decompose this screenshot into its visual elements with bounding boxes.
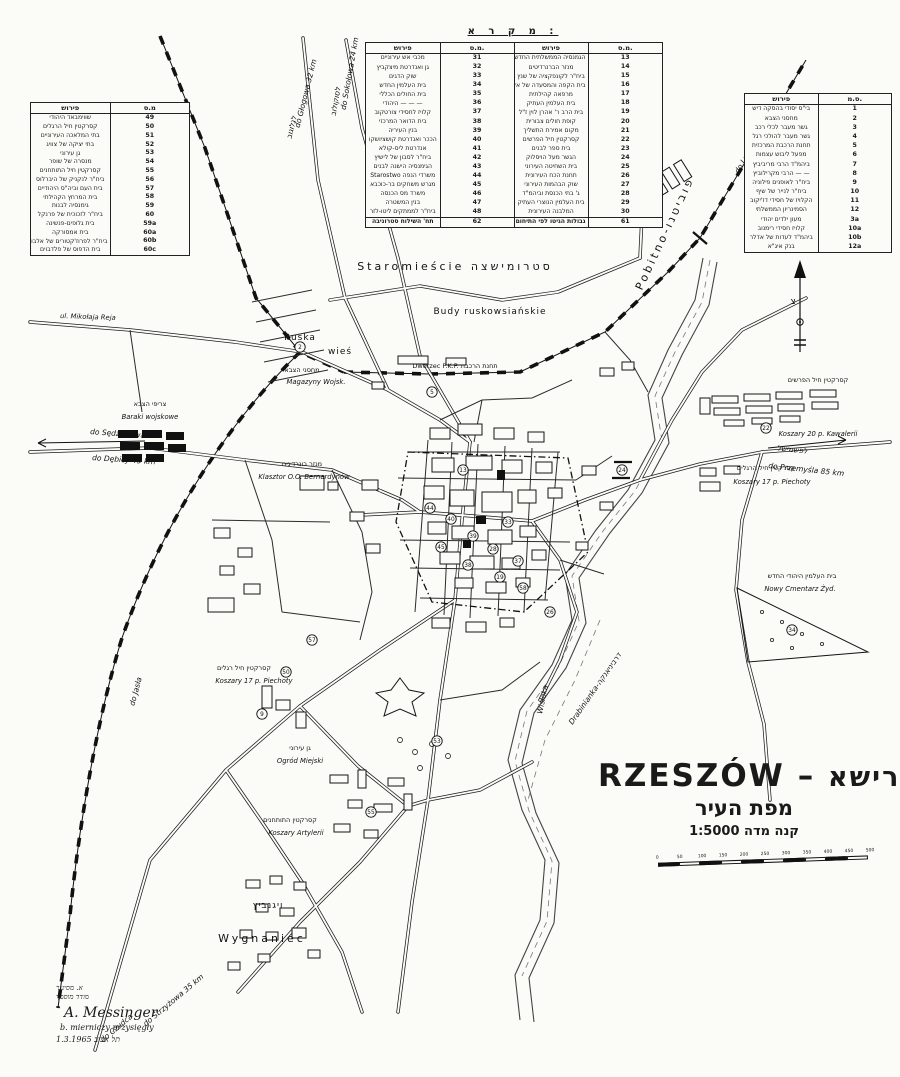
legend-cell: 35 [440, 90, 514, 99]
legend-cell: — — — היהודי [366, 99, 440, 108]
legend-cell: הגימנסיה הישנה לבנים [366, 162, 440, 171]
map-marker-39: 39 [468, 531, 478, 541]
map-marker-44: 44 [425, 503, 435, 513]
legend-cell: 10b [818, 234, 891, 243]
legend-cell: 37 [440, 108, 514, 117]
title-latin: RZESZÓW [598, 758, 785, 794]
legend-cell: 47 [440, 198, 514, 207]
legend-cell: 15 [588, 72, 662, 81]
legend-cell: 3 [818, 124, 891, 133]
legend-cell: 43 [440, 162, 514, 171]
label-artyleria-he: קסרקטין התותחנים [263, 816, 317, 824]
map-marker-50: 50 [281, 667, 291, 677]
map-marker-45: 45 [436, 542, 446, 552]
legend-cell: 54 [110, 158, 189, 167]
svg-text:24: 24 [618, 468, 626, 474]
legend-cell: בית השחיטה העירוני [514, 162, 588, 171]
legend-cell: גן עירוני [31, 149, 110, 158]
legend-cell: 4 [818, 133, 891, 142]
scale-tick: 100 [698, 854, 707, 859]
legend-cell: תחנת הרכבת המרכזית [745, 142, 818, 151]
map-marker-9: 9 [257, 709, 267, 719]
legend-cell: גשר מעבר להולכי רגל [745, 133, 818, 142]
legend-cell: גן ואנדרטת מיצקביץ [366, 63, 440, 72]
legend-cell: מקום אמירת התשליך [514, 126, 588, 135]
legend-cell: 42 [440, 153, 514, 162]
svg-text:53: 53 [433, 739, 441, 745]
scale-segment [700, 861, 721, 866]
legend-cell: 52 [110, 141, 189, 150]
label-artyleria: Koszary Artylerii [268, 829, 324, 837]
legend-cell: ביח"ר לסבון של לישיץ [366, 153, 440, 162]
legend-cell: 12a [818, 243, 891, 252]
legend-cell: קסרקטין חיל הפרשים [514, 135, 588, 144]
svg-text:26: 26 [546, 610, 554, 616]
legend-cell: 62 [440, 217, 514, 227]
label-dworzec: Dworzec P.K.P. תחנת הרכבת [412, 362, 497, 370]
svg-text:5: 5 [430, 390, 434, 396]
map-marker-33: 33 [503, 517, 513, 527]
legend-cell: 30 [588, 207, 662, 217]
scale-tick: 0 [656, 856, 659, 861]
label-baraki-he: צריפי הצבא [134, 400, 167, 408]
svg-text:33: 33 [504, 520, 512, 526]
legend-cell: 38 [440, 117, 514, 126]
label-do-jasla: do Jasła [127, 676, 143, 707]
legend-cell: 39 [440, 126, 514, 135]
signature-hebrew-2: מודד מוסמך [56, 993, 226, 1002]
label-wygnaniec-he: ויגנביץ [253, 901, 284, 911]
map-marker-57: 57 [307, 635, 317, 645]
map-marker-28: 28 [488, 544, 498, 554]
label-ul-reja: ul. Mikołaja Reja [60, 312, 116, 322]
legend-cell: 7 [818, 160, 891, 169]
legend-cell: ביח"ר לנקניק של היברלוס [31, 176, 110, 185]
legend-cell: שווימבאד היהודי [31, 114, 110, 123]
legend-cell: 2 [818, 114, 891, 123]
legend-cell: 1 [818, 105, 891, 115]
legend-cell: בית הדפוס של פלדבוים [31, 246, 110, 255]
legend-header: פירוש [366, 43, 440, 54]
legend-cell: ביח"ר לנייר של שיף [745, 188, 818, 197]
legend-cell: 60b [110, 237, 189, 246]
legend-cell: מנסרה של שופר [31, 158, 110, 167]
map-title: RZESZÓW – רישא [598, 758, 890, 794]
legend-cell: ג' בתי הכנסת וביהמ"ד [514, 189, 588, 198]
legend-cell: בית אמסורקה [31, 229, 110, 238]
legend-cell: ביח"ר לאופנים פילוניה [745, 179, 818, 188]
scale-tick: 450 [845, 849, 854, 854]
legend-cell: מגרש משחקים בר-כוכבא [366, 180, 440, 189]
legend-cell: 3a [818, 215, 891, 224]
legend-cell: בית העלמין העתיק [514, 99, 588, 108]
legend-cell: 58 [110, 193, 189, 202]
scale-tick: 50 [677, 855, 683, 860]
legend-cell: בית הדואר המרכזי [366, 117, 440, 126]
label-piechota-r: Koszary 17 p. Piechoty [733, 478, 811, 486]
legend-cell: 50 [110, 123, 189, 132]
legend-cell: בתי יציקה של צוויג [31, 141, 110, 150]
label-cmentarz: Nowy Cmentarz Żyd. [764, 584, 835, 593]
legend-cell: ביח"ר לפרוז'קטורים של אלבוים [31, 237, 110, 246]
legend-cell: 40 [440, 135, 514, 144]
label-ogrod-he: גן עירוני [289, 744, 311, 752]
legend-cell: בית הקפה והמסעדה של אקשטיין [514, 81, 588, 90]
map-marker-58: 58 [518, 583, 528, 593]
legend-cell: בתי המלאכה העירוניים [31, 132, 110, 141]
svg-text:9: 9 [260, 712, 264, 718]
label-kawaleria: Koszary 20 p. Kawalerii [779, 430, 858, 438]
legend-cell: 49 [110, 114, 189, 123]
legend-cell: ביהמ"ד הרבי מריביביץ [745, 160, 818, 169]
legend-cell: 20 [588, 117, 662, 126]
legend-cell: הככר ואנדרטת קושציושקו [366, 135, 440, 144]
label-wygnaniec: Wygnaniec [218, 932, 306, 945]
label-cmentarz-he: בית העלמין היהודי החדש [768, 572, 837, 580]
legend-cell: 51 [110, 132, 189, 141]
svg-text:40: 40 [447, 517, 455, 523]
legend-cell: שוק הבהמות העירוני [514, 180, 588, 189]
legend-cell: 21 [588, 126, 662, 135]
legend-cell: קסרקטין חיל הרגלים [31, 123, 110, 132]
legend-cell: בית המרחץ הקהילתי [31, 193, 110, 202]
legend-cell: 13 [588, 54, 662, 64]
map-marker-24: 24 [617, 465, 627, 475]
svg-text:37: 37 [514, 559, 522, 565]
north-arrow-icon: צ [790, 260, 806, 352]
map-marker-55: 55 [366, 807, 376, 817]
map-marker-37: 37 [513, 556, 523, 566]
map-marker-19: 19 [495, 572, 505, 582]
legend-cell: 31 [440, 54, 514, 64]
legend-cell: 57 [110, 185, 189, 194]
legend-cell: 32 [440, 63, 514, 72]
label-piechota-l: Koszary 17 p. Piechoty [215, 677, 293, 685]
label-baraki: Baraki wojskowe [122, 413, 179, 421]
scale-segment [742, 859, 763, 864]
legend-cell: 24 [588, 153, 662, 162]
signature-hebrew-1: א. מסינגר [56, 984, 226, 993]
legend-cell: 34 [440, 81, 514, 90]
legend-cell: 16 [588, 81, 662, 90]
legend-cell: 22 [588, 135, 662, 144]
scale-tick: 150 [719, 853, 728, 858]
legend-cell: תחנת הכח העירונית [514, 171, 588, 180]
label-kawaleria-he: קסרקטין חיל הפרשים [788, 376, 849, 384]
legend-left-panel: פירושמ.סשווימבאד היהודי49קסרקטין חיל הרג… [30, 102, 190, 256]
scale-segment [784, 858, 805, 863]
map-sheet: צ Staromieście סטרומישצה Budy ruskowsiań… [0, 0, 900, 1077]
label-klasztor: Klasztor O.O. Bernardynów [258, 473, 350, 481]
legend-cell: 27 [588, 180, 662, 189]
label-do-sedziszowa: do Sędziszowa [90, 427, 146, 440]
map-subtitle: מפת העיר [598, 796, 890, 820]
legend-cell: 17 [588, 90, 662, 99]
legend-cell: — — הרבי מקרילוביץ [745, 169, 818, 178]
title-hebrew: רישא [828, 762, 900, 793]
svg-text:13: 13 [459, 468, 467, 474]
legend-main-panel: פירושמ.ס.פירושמ.ס.מכבי אש עירוניים31הגמנ… [365, 42, 663, 228]
svg-text:22: 22 [762, 426, 770, 432]
legend-cell: גבולות הגיטו לפי התיחום [514, 217, 588, 227]
legend-right-panel: פירושס.מ.בי"ס יסודי בהסקה דיש1מחסני הצבא… [744, 93, 892, 253]
svg-text:39: 39 [469, 534, 477, 540]
legend-cell: 5 [818, 142, 891, 151]
legend-cell: בית העלמין הנוצרי העתיק [514, 198, 588, 207]
scale-tick: 500 [866, 848, 875, 853]
legend-cell: הגמנסיה הממשלתית החדשה [514, 54, 588, 64]
scale-tick: 400 [824, 850, 833, 855]
legend-cell: בית העלמין החדש [366, 81, 440, 90]
legend-cell: בית גלופים-פנשינה [31, 220, 110, 229]
legend-cell: הגשר מעל הויסלוק [514, 153, 588, 162]
map-marker-13: 13 [458, 465, 468, 475]
signature-role: b. mierniczy przysięgły [60, 1023, 226, 1032]
svg-text:34: 34 [788, 628, 796, 634]
legend-cell: 6 [818, 151, 891, 160]
map-marker-26: 26 [545, 607, 555, 617]
legend-cell: 45 [440, 180, 514, 189]
map-marker-38: 38 [463, 560, 473, 570]
map-scale-label: קנה מדה 1:5000 [598, 824, 890, 839]
svg-text:50: 50 [282, 670, 290, 676]
map-marker-5: 5 [427, 387, 437, 397]
map-marker-22: 22 [761, 423, 771, 433]
legend-cell: גימנסיה לבנות [31, 202, 110, 211]
legend-cell: בנין המשטרה [366, 198, 440, 207]
legend-cell: 53 [110, 149, 189, 158]
legend-cell: בנין העיריה [366, 126, 440, 135]
legend-cell: 61 [588, 217, 662, 227]
svg-text:45: 45 [437, 545, 445, 551]
legend-cell: ביח"ר לזכוכית של פרנקל [31, 211, 110, 220]
legend-cell: קלויז חסידי רימנוב [745, 224, 818, 233]
legend-cell: 18 [588, 99, 662, 108]
legend-main-title: מ ק ר א : [365, 26, 661, 37]
label-magazyny: Magazyny Wojsk. [287, 378, 346, 386]
legend-cell: 48 [440, 207, 514, 217]
scale-segment [721, 860, 742, 865]
label-wisloka: Wisłoka [535, 684, 550, 715]
legend-header: פירוש [31, 103, 110, 114]
legend-cell: 28 [588, 189, 662, 198]
label-do-przemysla-he: לפשמישל [777, 443, 809, 455]
label-ogrod: Ogród Miejski [277, 757, 323, 765]
legend-cell: 46 [440, 189, 514, 198]
legend-header: מ.ס [110, 103, 189, 114]
map-marker-53: 53 [432, 736, 442, 746]
title-block: RZESZÓW – רישא מפת העיר קנה מדה 1:5000 [598, 758, 890, 839]
legend-left-table: פירושמ.סשווימבאד היהודי49קסרקטין חיל הרג… [31, 103, 189, 255]
label-piechota-r-he: קסרקטין חיל הרגלים [737, 464, 796, 472]
legend-cell: קופת חולים צבורית [514, 117, 588, 126]
legend-cell: משרדי הנפה Starostwo [366, 171, 440, 180]
legend-cell: 55 [110, 167, 189, 176]
legend-cell: קסרקטין חיל התותחנים [31, 167, 110, 176]
legend-cell: 23 [588, 144, 662, 153]
legend-cell: הקלויז של חסידי דז'יקוב [745, 197, 818, 206]
signature-name: A. Messinger [64, 1005, 226, 1021]
legend-cell: ביח"ר לממתקים ליטו-לזר [366, 207, 440, 217]
svg-text:58: 58 [519, 586, 527, 592]
legend-cell: ביהמ"ד לעדות של אדלר [745, 234, 818, 243]
legend-cell: בית העם וביה"ס היהודיים [31, 185, 110, 194]
map-marker-34: 34 [787, 625, 797, 635]
legend-cell: 59a [110, 220, 189, 229]
compass-letter: צ [790, 297, 795, 307]
legend-cell: המלבנה העירונית [514, 207, 588, 217]
legend-header: פירוש [514, 43, 588, 54]
svg-text:44: 44 [426, 506, 434, 512]
legend-cell: 8 [818, 169, 891, 178]
legend-cell: 59 [110, 202, 189, 211]
scale-tick: 250 [761, 852, 770, 857]
scale-segment [679, 861, 700, 866]
legend-cell: בנק איג"א [745, 243, 818, 252]
legend-cell: מרפאה קהילתית [514, 90, 588, 99]
label-staromiescie: Staromieście סטרומישצה [357, 260, 553, 273]
legend-cell: 19 [588, 108, 662, 117]
legend-cell: בית החולים הכללי [366, 90, 440, 99]
label-klasztor-he: מנזר בונרדינים [282, 460, 322, 468]
scale-segment [658, 862, 679, 867]
legend-cell: בי"ס יסודי בהסקה דיש [745, 105, 818, 115]
scale-tick: 200 [740, 853, 749, 858]
map-marker-2: 2 [295, 342, 305, 352]
label-piechota-l-he: קסרקטין חיל רגלים [217, 664, 271, 672]
legend-main-table: פירושמ.ס.פירושמ.ס.מכבי אש עירוניים31הגמנ… [366, 43, 662, 227]
label-magazyny-he: מחסני הצבא [284, 366, 319, 374]
label-budy: Budy ruskowsiańskie [434, 307, 547, 317]
legend-header: מ.ס. [588, 43, 662, 54]
legend-cell: 14 [588, 63, 662, 72]
legend-header: פירוש [745, 94, 818, 105]
jewish-cemetery [737, 588, 868, 662]
legend-cell: 36 [440, 99, 514, 108]
legend-cell: 60a [110, 229, 189, 238]
scale-segment [763, 858, 784, 863]
legend-header: מ.ס. [440, 43, 514, 54]
legend-cell: בית הרב ר' אהרן לוין ז"ל [514, 108, 588, 117]
legend-cell: הסמינריון הממשלתי [745, 206, 818, 215]
legend-cell: מחסני הצבא [745, 114, 818, 123]
svg-text:55: 55 [367, 810, 375, 816]
scale-segment [826, 856, 847, 861]
legend-cell: 44 [440, 171, 514, 180]
legend-cell: 33 [440, 72, 514, 81]
legend-cell: 60c [110, 246, 189, 255]
map-marker-40: 40 [446, 514, 456, 524]
scale-tick: 300 [782, 851, 791, 856]
legend-cell: 56 [110, 176, 189, 185]
svg-text:19: 19 [496, 575, 504, 581]
legend-cell: 12 [818, 206, 891, 215]
legend-cell: קלויז לחסידי צורטקוב [366, 108, 440, 117]
legend-cell: ביח"ר לקונפקציה של שנץ [514, 72, 588, 81]
legend-cell: מעון ילדים יהודי [745, 215, 818, 224]
svg-text:28: 28 [489, 547, 497, 553]
legend-header: ס.מ. [818, 94, 891, 105]
legend-cell: 10a [818, 224, 891, 233]
legend-cell: 9 [818, 179, 891, 188]
scale-segment [805, 857, 826, 862]
label-wies: wieś [328, 346, 352, 357]
legend-cell: גשר מעבר לכלי רכב [745, 124, 818, 133]
signature-block: א. מסינגר מודד מוסמך A. Messinger b. mie… [56, 984, 226, 1044]
legend-cell: מנזר הברנרדיטים [514, 63, 588, 72]
legend-cell: תח' השילוח סטרוניבה [366, 217, 440, 227]
legend-cell: שוק הדגים [366, 72, 440, 81]
svg-text:2: 2 [298, 345, 302, 351]
svg-text:38: 38 [464, 563, 472, 569]
legend-cell: 11 [818, 197, 891, 206]
legend-right-table: פירושס.מ.בי"ס יסודי בהסקה דיש1מחסני הצבא… [745, 94, 891, 252]
legend-cell: 41 [440, 144, 514, 153]
legend-cell: משרד מס הכנסה [366, 189, 440, 198]
label-drabinianka: Drabinianka-דרביניאנקה [567, 650, 624, 726]
svg-text:57: 57 [308, 638, 316, 644]
legend-cell: 60 [110, 211, 189, 220]
legend-cell: אנדרטת ליס-קולא [366, 144, 440, 153]
legend-cell: 10 [818, 188, 891, 197]
legend-cell: 26 [588, 171, 662, 180]
legend-cell: מפעל ליבוש עצמות [745, 151, 818, 160]
scale-segment [847, 855, 868, 860]
legend-cell: 25 [588, 162, 662, 171]
legend-cell: בית ספר לבנים [514, 144, 588, 153]
title-separator: – [798, 758, 816, 794]
scale-tick: 350 [803, 850, 812, 855]
legend-cell: 29 [588, 198, 662, 207]
legend-cell: מכבי אש עירוניים [366, 54, 440, 64]
signature-place-date: תל אביב 1.3.1965 [56, 1035, 226, 1044]
